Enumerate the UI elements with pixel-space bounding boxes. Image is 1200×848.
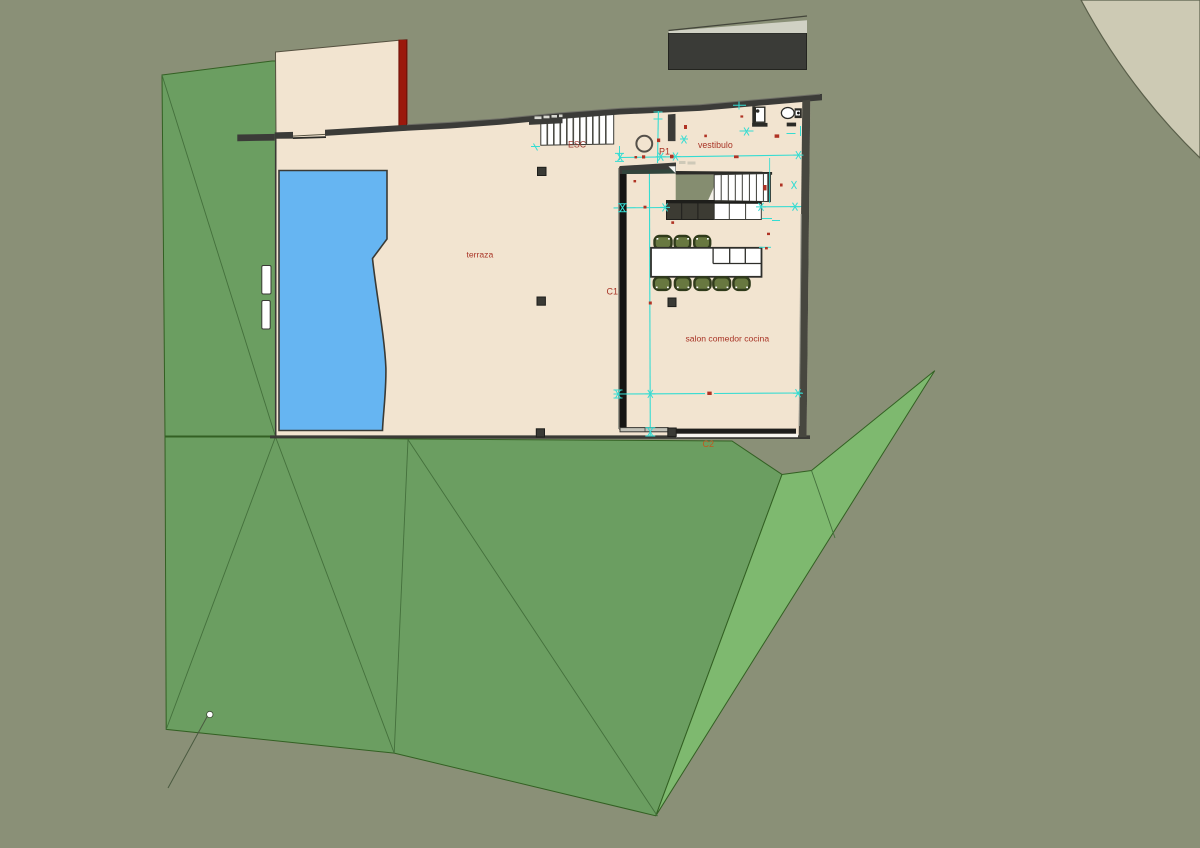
svg-text:terraza: terraza bbox=[467, 250, 494, 260]
svg-text:C2: C2 bbox=[703, 439, 715, 449]
svg-text:ESC: ESC bbox=[568, 140, 587, 150]
svg-text:C1: C1 bbox=[607, 287, 619, 297]
svg-text:salon comedor cocina: salon comedor cocina bbox=[686, 334, 770, 344]
svg-text:P1: P1 bbox=[659, 147, 670, 157]
svg-text:vestibulo: vestibulo bbox=[698, 140, 733, 150]
